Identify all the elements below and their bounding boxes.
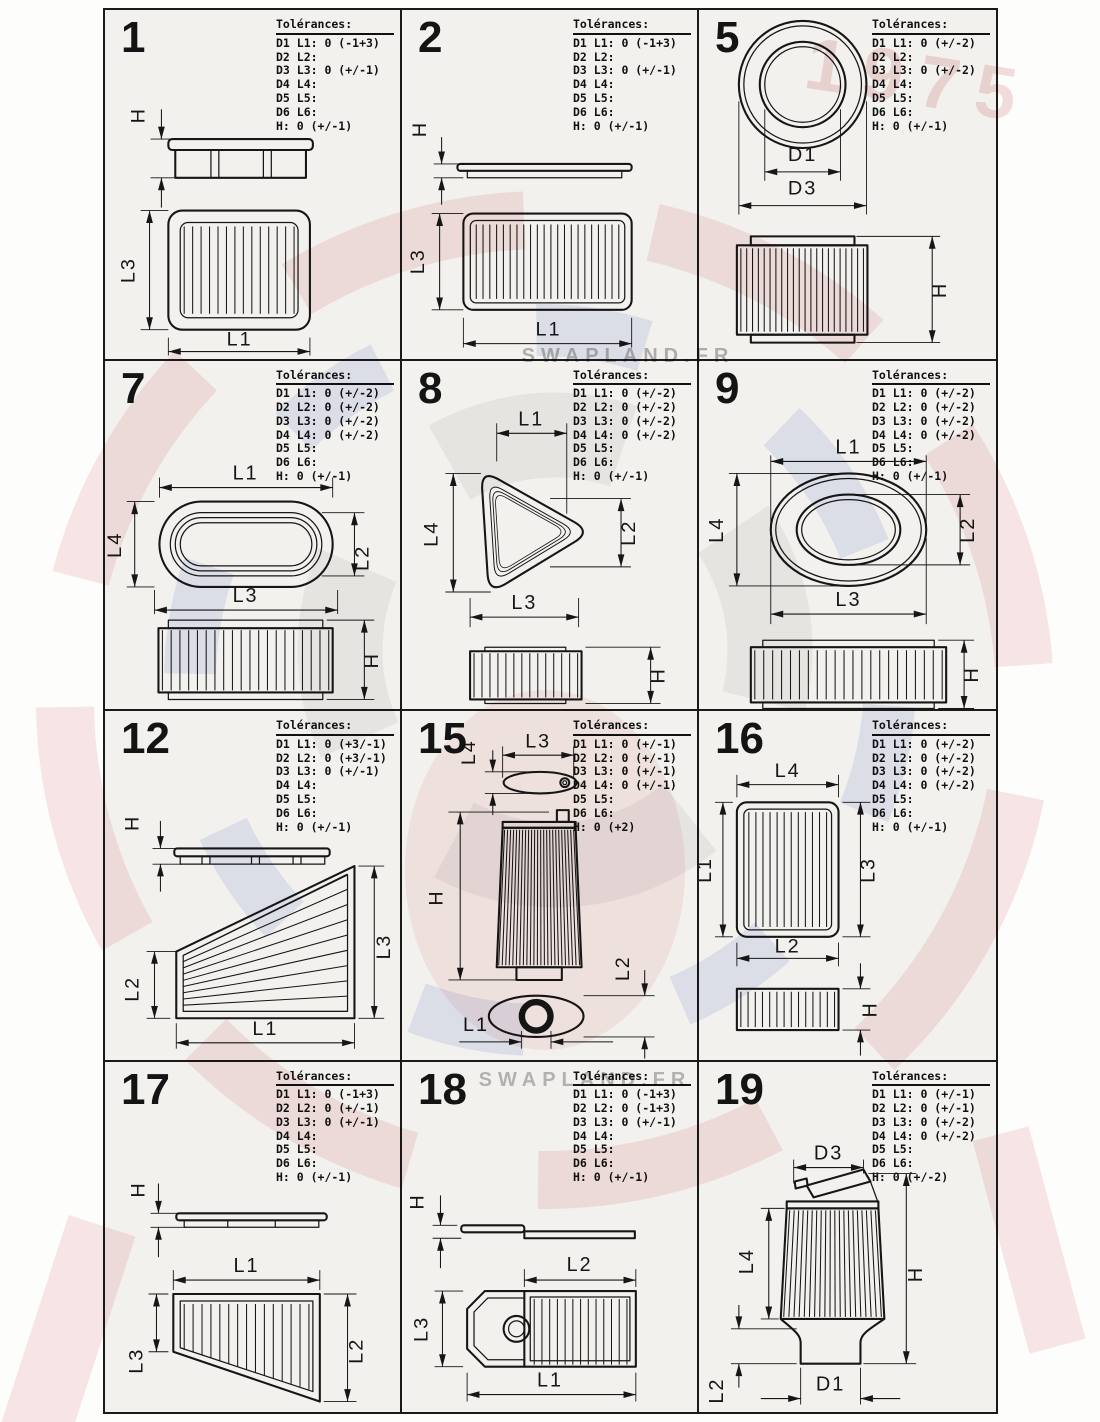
tolerance-line: D2 L2: 0 (+/-1) <box>276 1102 394 1116</box>
dim-label-l2: L2 <box>345 1337 367 1363</box>
tolerance-line: D4 L4: <box>276 1130 394 1144</box>
dim-label-l3: L3 <box>857 857 879 883</box>
dim-label-l3: L3 <box>118 257 140 283</box>
tolerance-title: Tolérances: <box>872 719 990 736</box>
tolerance-line: D6 L6: <box>276 1157 394 1171</box>
tolerance-line: H: 0 (+/-2) <box>872 1171 990 1185</box>
tolerance-line: D4 L4: 0 (+/-1) <box>573 779 691 793</box>
tolerance-title: Tolérances: <box>276 18 394 35</box>
dim-label-l3: L3 <box>835 588 861 610</box>
tolerance-table: Tolérances: D1 L1: 0 (-1+3) D2 L2: 0 (-1… <box>573 1070 691 1185</box>
tolerance-line: D3 L3: 0 (+/-1) <box>573 765 691 779</box>
tolerance-line: D1 L1: 0 (+/-1) <box>573 738 691 752</box>
tolerance-line: H: 0 (+2) <box>573 821 691 835</box>
tolerance-line: D3 L3: 0 (+/-1) <box>276 1116 394 1130</box>
tolerance-line: D4 L4: 0 (+/-2) <box>573 429 691 443</box>
dim-label-h: H <box>128 107 150 123</box>
panel-5: D1 D3 H 5 Tolérances: D1 L1: 0 (+/-2) D2… <box>699 10 996 361</box>
dim-label-h: H <box>961 666 983 683</box>
tolerance-line: D3 L3: 0 (+/-1) <box>573 64 691 78</box>
dim-label-l3: L3 <box>411 1315 433 1341</box>
tolerance-line: D3 L3: 0 (+/-2) <box>872 1116 990 1130</box>
tolerance-line: H: 0 (+/-1) <box>573 1171 691 1185</box>
tolerance-line: D5 L5: <box>573 442 691 456</box>
tolerance-line: D3 L3: 0 (+/-2) <box>872 765 990 779</box>
panel-number: 5 <box>715 16 739 60</box>
dim-label-l2: L2 <box>957 516 979 542</box>
tolerance-line: D3 L3: 0 (+/-2) <box>872 64 990 78</box>
panel-number: 18 <box>418 1068 467 1112</box>
dim-label-h: H <box>361 652 383 669</box>
dim-label-l2: L2 <box>351 544 373 570</box>
tolerance-line: D1 L1: 0 (-1+3) <box>276 1088 394 1102</box>
tolerance-title: Tolérances: <box>573 719 691 736</box>
tolerance-table: Tolérances: D1 L1: 0 (+3/-1) D2 L2: 0 (+… <box>276 719 394 834</box>
dim-label-h: H <box>648 667 670 684</box>
tolerance-table: Tolérances: D1 L1: 0 (+/-2) D2 L2: 0 (+/… <box>872 369 990 484</box>
tolerance-line: D6 L6: <box>573 456 691 470</box>
tolerance-title: Tolérances: <box>872 18 990 35</box>
dim-label-l2: L2 <box>706 1377 728 1403</box>
tolerance-line: D2 L2: <box>872 51 990 65</box>
tolerance-title: Tolérances: <box>276 719 394 736</box>
tolerance-line: D4 L4: <box>573 78 691 92</box>
dim-label-d3: D3 <box>814 1142 843 1164</box>
tolerance-line: D6 L6: <box>872 1157 990 1171</box>
dim-label-l1: L1 <box>835 436 861 458</box>
panel-number: 17 <box>121 1068 170 1112</box>
dim-label-l3: L3 <box>373 934 395 960</box>
tolerance-line: D6 L6: <box>276 106 394 120</box>
tolerance-line: H: 0 (+/-1) <box>872 821 990 835</box>
dim-label-h: H <box>425 889 447 905</box>
panel-19: D3 L4 H L2 D1 19 Tolérances: D1 L1: 0 (+… <box>699 1062 996 1413</box>
tolerance-line: D5 L5: <box>573 1143 691 1157</box>
tolerance-table: Tolérances: D1 L1: 0 (+/-2) D2 L2: D3 L3… <box>872 18 990 133</box>
panel-number: 12 <box>121 717 170 761</box>
panel-7: L1 L4 L2 L3 H 7 Tolérances: D1 L1: 0 (+/… <box>105 361 402 712</box>
tolerance-line: D4 L4: 0 (+/-2) <box>872 779 990 793</box>
dim-label-l2: L2 <box>618 519 640 545</box>
dim-label-h: H <box>905 1265 927 1281</box>
dim-label-h: H <box>409 121 431 137</box>
tolerance-line: D6 L6: <box>872 456 990 470</box>
dim-label-l4: L4 <box>775 760 801 782</box>
tolerance-line: D4 L4: <box>276 779 394 793</box>
panel-16: L4 L1 L3 L2 H 16 Tolérances: D1 L1: 0 (+… <box>699 711 996 1062</box>
tolerance-line: D4 L4: 0 (+/-2) <box>276 429 394 443</box>
diagram-grid: H L3 L1 1 Tolérances: D1 L1: 0 (-1+3) D2… <box>103 8 998 1414</box>
tolerance-line: D4 L4: <box>276 78 394 92</box>
tolerance-title: Tolérances: <box>872 1070 990 1087</box>
tolerance-line: D2 L2: 0 (-1+3) <box>573 1102 691 1116</box>
tolerance-line: D2 L2: 0 (+/-2) <box>872 752 990 766</box>
dim-label-l3: L3 <box>126 1347 148 1373</box>
tolerance-line: D2 L2: 0 (+/-1) <box>573 752 691 766</box>
dim-label-h: H <box>929 282 951 298</box>
tolerance-table: Tolérances: D1 L1: 0 (-1+3) D2 L2: D3 L3… <box>276 18 394 133</box>
dim-label-l3: L3 <box>525 730 551 752</box>
tolerance-line: D6 L6: <box>276 807 394 821</box>
tolerance-line: D5 L5: <box>276 793 394 807</box>
tolerance-line: D4 L4: 0 (+/-2) <box>872 429 990 443</box>
tolerance-line: D2 L2: 0 (+/-1) <box>872 1102 990 1116</box>
dim-label-d1: D1 <box>788 144 817 166</box>
tolerance-line: D3 L3: 0 (+/-1) <box>573 1116 691 1130</box>
dim-label-l4: L4 <box>736 1248 758 1274</box>
tolerance-line: D2 L2: 0 (+3/-1) <box>276 752 394 766</box>
tolerance-line: D5 L5: <box>276 1143 394 1157</box>
dim-label-h: H <box>128 1181 150 1197</box>
panel-number: 9 <box>715 367 739 411</box>
tolerance-line: D3 L3: 0 (+/-1) <box>276 64 394 78</box>
panel-number: 2 <box>418 16 442 60</box>
tolerance-line: D5 L5: <box>872 1143 990 1157</box>
tolerance-line: D1 L1: 0 (+/-2) <box>573 387 691 401</box>
dim-label-l1: L1 <box>234 1255 260 1277</box>
dim-label-l2: L2 <box>775 936 801 958</box>
panel-number: 1 <box>121 16 145 60</box>
dim-label-l1: L1 <box>537 1369 563 1391</box>
tolerance-line: D4 L4: 0 (+/-2) <box>872 1130 990 1144</box>
tolerance-line: D5 L5: <box>276 92 394 106</box>
tolerance-line: D5 L5: <box>872 442 990 456</box>
dim-label-d1: D1 <box>816 1373 845 1395</box>
dim-label-l2: L2 <box>122 976 144 1002</box>
tolerance-table: Tolérances: D1 L1: 0 (+/-2) D2 L2: 0 (+/… <box>872 719 990 834</box>
dim-label-l4: L4 <box>105 531 126 557</box>
dim-label-l2: L2 <box>612 955 634 981</box>
tolerance-table: Tolérances: D1 L1: 0 (+/-2) D2 L2: 0 (+/… <box>573 369 691 484</box>
dim-label-l3: L3 <box>511 591 537 613</box>
tolerance-line: D6 L6: <box>573 1157 691 1171</box>
tolerance-line: D3 L3: 0 (+/-1) <box>276 765 394 779</box>
tolerance-line: D3 L3: 0 (+/-2) <box>872 415 990 429</box>
dim-label-l1: L1 <box>536 319 562 341</box>
tolerance-line: D1 L1: 0 (+/-1) <box>872 1088 990 1102</box>
tolerance-line: D3 L3: 0 (+/-2) <box>573 415 691 429</box>
panel-15: L3 L4 H L1 L2 15 Tolérances: <box>402 711 699 1062</box>
dim-label-h: H <box>859 1001 881 1017</box>
panel-number: 15 <box>418 717 467 761</box>
tolerance-table: Tolérances: D1 L1: 0 (+/-1) D2 L2: 0 (+/… <box>872 1070 990 1185</box>
tolerance-line: D1 L1: 0 (+/-2) <box>276 387 394 401</box>
tolerance-title: Tolérances: <box>276 369 394 386</box>
tolerance-line: D2 L2: 0 (+/-2) <box>872 401 990 415</box>
tolerance-line: D1 L1: 0 (-1+3) <box>573 37 691 51</box>
tolerance-line: D1 L1: 0 (+/-2) <box>872 387 990 401</box>
tolerance-title: Tolérances: <box>872 369 990 386</box>
dim-label-h: H <box>122 815 144 831</box>
dim-label-l1: L1 <box>518 408 544 430</box>
panel-number: 16 <box>715 717 764 761</box>
panel-12: H L2 L3 L1 12 Tolérances: D1 L1: 0 (+3/-… <box>105 711 402 1062</box>
tolerance-table: Tolérances: D1 L1: 0 (-1+3) D2 L2: D3 L3… <box>573 18 691 133</box>
dim-label-l1: L1 <box>699 857 716 883</box>
tolerance-title: Tolérances: <box>573 1070 691 1087</box>
tolerance-line: D5 L5: <box>872 92 990 106</box>
tolerance-line: H: 0 (+/-1) <box>573 470 691 484</box>
page: H L3 L1 1 Tolérances: D1 L1: 0 (-1+3) D2… <box>0 0 1100 1422</box>
panel-8: L1 L4 L2 L3 H 8 Tolérances: D1 L1: 0 (+/… <box>402 361 699 712</box>
dim-label-l1: L1 <box>252 1018 278 1040</box>
panel-2: H L3 L1 2 Tolérances: D1 L1: 0 (-1+3) D2… <box>402 10 699 361</box>
tolerance-line: H: 0 (+/-1) <box>573 120 691 134</box>
tolerance-line: D3 L3: 0 (+/-2) <box>276 415 394 429</box>
tolerance-table: Tolérances: D1 L1: 0 (-1+3) D2 L2: 0 (+/… <box>276 1070 394 1185</box>
dim-label-l1: L1 <box>463 1014 489 1036</box>
tolerance-line: D6 L6: <box>872 807 990 821</box>
tolerance-line: D1 L1: 0 (+/-2) <box>872 738 990 752</box>
tolerance-line: D6 L6: <box>573 807 691 821</box>
tolerance-line: H: 0 (+/-1) <box>872 470 990 484</box>
tolerance-table: Tolérances: D1 L1: 0 (+/-2) D2 L2: 0 (+/… <box>276 369 394 484</box>
tolerance-line: H: 0 (+/-1) <box>276 821 394 835</box>
tolerance-line: H: 0 (+/-1) <box>276 1171 394 1185</box>
panel-18: H L2 L3 L1 18 Tolérances: D1 L1: 0 (-1+3… <box>402 1062 699 1413</box>
tolerance-line: D5 L5: <box>573 793 691 807</box>
tolerance-title: Tolérances: <box>573 18 691 35</box>
tolerance-line: D6 L6: <box>872 106 990 120</box>
tolerance-line: D1 L1: 0 (-1+3) <box>276 37 394 51</box>
dim-label-l2: L2 <box>567 1254 593 1276</box>
tolerance-line: D2 L2: 0 (+/-2) <box>276 401 394 415</box>
dim-label-l1: L1 <box>227 329 253 351</box>
tolerance-line: H: 0 (+/-1) <box>276 120 394 134</box>
tolerance-line: D4 L4: <box>573 1130 691 1144</box>
panel-number: 8 <box>418 367 442 411</box>
dim-label-h: H <box>407 1193 429 1209</box>
tolerance-line: D5 L5: <box>276 442 394 456</box>
dim-label-l3: L3 <box>233 584 259 606</box>
tolerance-line: D4 L4: <box>872 78 990 92</box>
panel-17: H L1 L3 L2 17 Tolérances: D1 L1: 0 (-1+3… <box>105 1062 402 1413</box>
tolerance-line: H: 0 (+/-1) <box>872 120 990 134</box>
tolerance-table: Tolérances: D1 L1: 0 (+/-1) D2 L2: 0 (+/… <box>573 719 691 834</box>
dim-label-d3: D3 <box>788 178 817 200</box>
dim-label-l4: L4 <box>421 520 443 546</box>
tolerance-line: H: 0 (+/-1) <box>276 470 394 484</box>
tolerance-title: Tolérances: <box>573 369 691 386</box>
tolerance-line: D2 L2: <box>276 51 394 65</box>
tolerance-line: D2 L2: <box>573 51 691 65</box>
panel-1: H L3 L1 1 Tolérances: D1 L1: 0 (-1+3) D2… <box>105 10 402 361</box>
tolerance-line: D1 L1: 0 (+3/-1) <box>276 738 394 752</box>
tolerance-line: D1 L1: 0 (-1+3) <box>573 1088 691 1102</box>
tolerance-line: D6 L6: <box>573 106 691 120</box>
tolerance-line: D2 L2: 0 (+/-2) <box>573 401 691 415</box>
tolerance-line: D5 L5: <box>872 793 990 807</box>
panel-number: 19 <box>715 1068 764 1112</box>
tolerance-title: Tolérances: <box>276 1070 394 1087</box>
tolerance-line: D1 L1: 0 (+/-2) <box>872 37 990 51</box>
dim-label-l3: L3 <box>407 248 429 274</box>
dim-label-l4: L4 <box>706 516 728 542</box>
panel-9: L1 L4 L2 L3 H 9 Tolérances: D1 L1: 0 (+/… <box>699 361 996 712</box>
dim-label-l1: L1 <box>233 462 259 484</box>
tolerance-line: D5 L5: <box>573 92 691 106</box>
tolerance-line: D6 L6: <box>276 456 394 470</box>
panel-number: 7 <box>121 367 145 411</box>
